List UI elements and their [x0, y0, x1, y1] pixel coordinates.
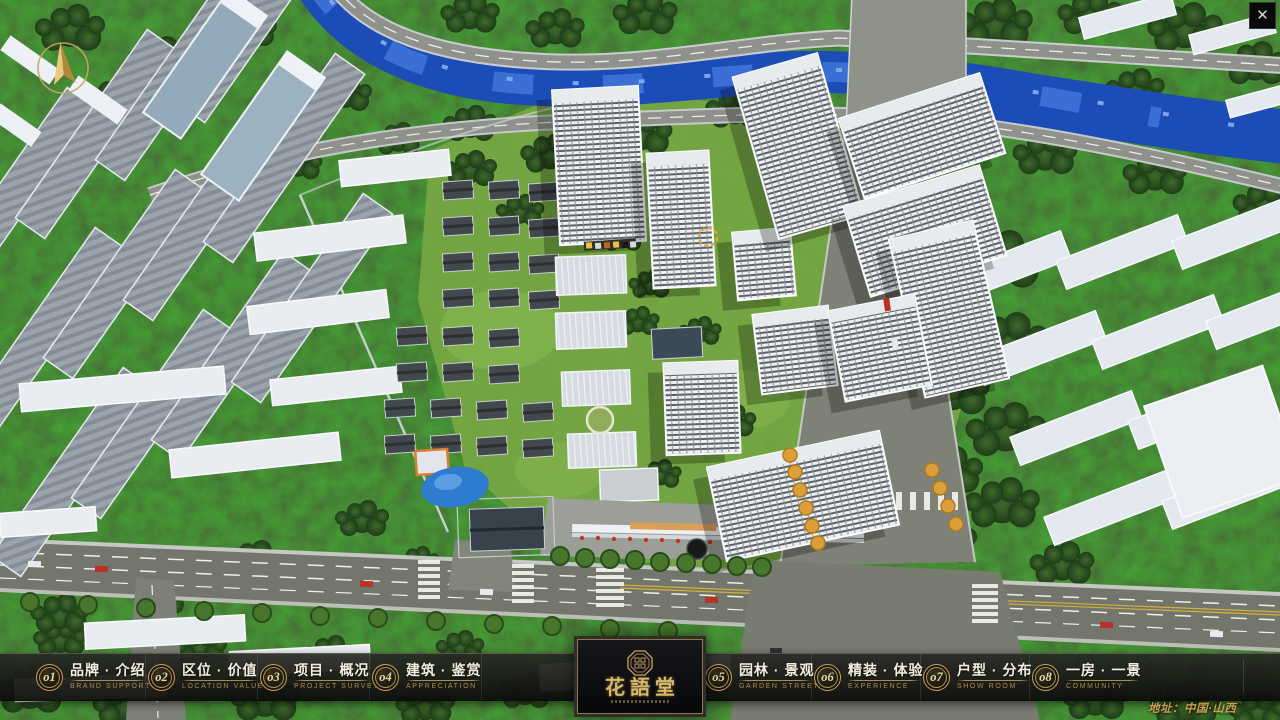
nav-label-divider — [739, 680, 811, 681]
brand-title: 花語堂 — [600, 677, 680, 697]
nav-label-en: BRAND SUPPORT — [70, 683, 145, 691]
nav-number-badge: o2 — [148, 664, 175, 691]
nav-item-landscape[interactable]: o5 园林 · 景观 GARDEN STREET — [703, 654, 812, 700]
nav-item-floorplans[interactable]: o7 户型 · 分布 SHOW ROOM — [921, 654, 1030, 700]
nav-item-location-value[interactable]: o2 区位 · 价值 LOCATION VALUE — [146, 654, 258, 700]
nav-label-en: PROJECT SURVEY — [294, 683, 369, 691]
nav-number-badge: o4 — [372, 664, 399, 691]
nav-label-zh: 建筑 · 鉴赏 — [406, 663, 481, 678]
nav-label-divider — [848, 680, 920, 681]
nav-label-divider — [406, 680, 481, 681]
nav-label-zh: 户型 · 分布 — [957, 663, 1029, 678]
nav-number-badge: o8 — [1032, 664, 1059, 691]
aerial-site-map[interactable] — [0, 0, 1280, 720]
nav-label-zh: 精装 · 体验 — [848, 663, 920, 678]
nav-label-zh: 区位 · 价值 — [182, 663, 257, 678]
nav-label-en: COMMUNITY — [1066, 683, 1139, 691]
nav-item-interior[interactable]: o6 精装 · 体验 EXPERIENCE — [812, 654, 921, 700]
nav-item-project-overview[interactable]: o3 项目 · 概况 PROJECT SURVEY — [258, 654, 370, 700]
nav-label-en: APPRECIATION — [406, 683, 481, 691]
nav-label-en: LOCATION VALUE — [182, 683, 257, 691]
nav-label-divider — [182, 680, 257, 681]
nav-number-badge: o6 — [814, 664, 841, 691]
nav-item-architecture[interactable]: o4 建筑 · 鉴赏 APPRECIATION — [370, 654, 482, 700]
app-window: ✕ o1 品牌 · 介绍 BRAND SUPPORT o2 区位 · 价值 LO… — [0, 0, 1280, 720]
nav-group-right: o5 园林 · 景观 GARDEN STREET o6 精装 · 体验 EXPE… — [703, 654, 1139, 700]
nav-number-badge: o7 — [923, 664, 950, 691]
nav-label-divider — [70, 680, 145, 681]
nav-label-en: SHOW ROOM — [957, 683, 1029, 691]
nav-label-en: GARDEN STREET — [739, 683, 811, 691]
logo-home-button[interactable]: 花語堂 — [577, 639, 703, 714]
brand-caption-line — [611, 700, 669, 703]
close-button[interactable]: ✕ — [1249, 2, 1276, 29]
nav-divider — [1243, 659, 1244, 693]
nav-label-en: EXPERIENCE — [848, 683, 920, 691]
nav-number-badge: o5 — [705, 664, 732, 691]
nav-label-zh: 品牌 · 介绍 — [70, 663, 145, 678]
compass-north-icon — [34, 38, 92, 96]
nav-label-zh: 园林 · 景观 — [739, 663, 811, 678]
nav-label-zh: 项目 · 概况 — [294, 663, 369, 678]
nav-item-room-view[interactable]: o8 一房 · 一景 COMMUNITY — [1030, 654, 1139, 700]
nav-label-divider — [957, 680, 1029, 681]
brand-seal-icon — [627, 650, 653, 676]
nav-number-badge: o1 — [36, 664, 63, 691]
nav-group-left: o1 品牌 · 介绍 BRAND SUPPORT o2 区位 · 价值 LOCA… — [34, 654, 482, 700]
nav-label-divider — [1066, 680, 1139, 681]
nav-label-zh: 一房 · 一景 — [1066, 663, 1139, 678]
site-address: 地址：中国·山西 — [1148, 700, 1278, 716]
nav-label-divider — [294, 680, 369, 681]
nav-number-badge: o3 — [260, 664, 287, 691]
nav-item-brand-intro[interactable]: o1 品牌 · 介绍 BRAND SUPPORT — [34, 654, 146, 700]
